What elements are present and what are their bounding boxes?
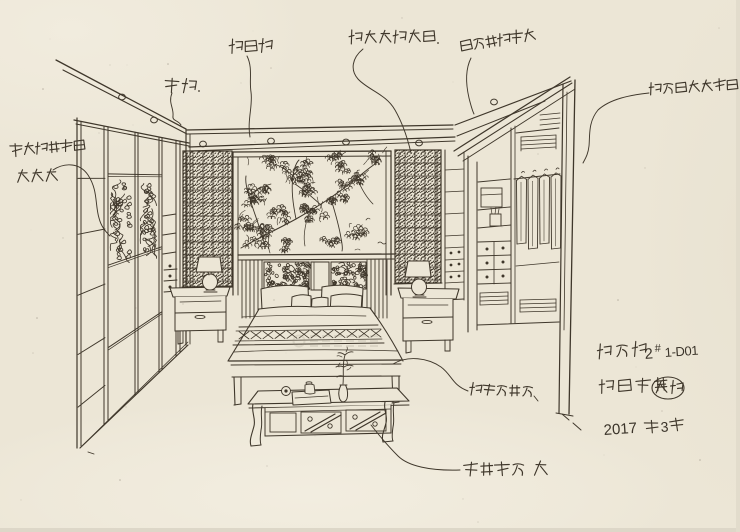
- svg-text:3: 3: [660, 418, 669, 435]
- svg-text:2017: 2017: [603, 420, 637, 439]
- svg-text:2: 2: [644, 345, 654, 363]
- svg-text:1-D01: 1-D01: [664, 343, 699, 360]
